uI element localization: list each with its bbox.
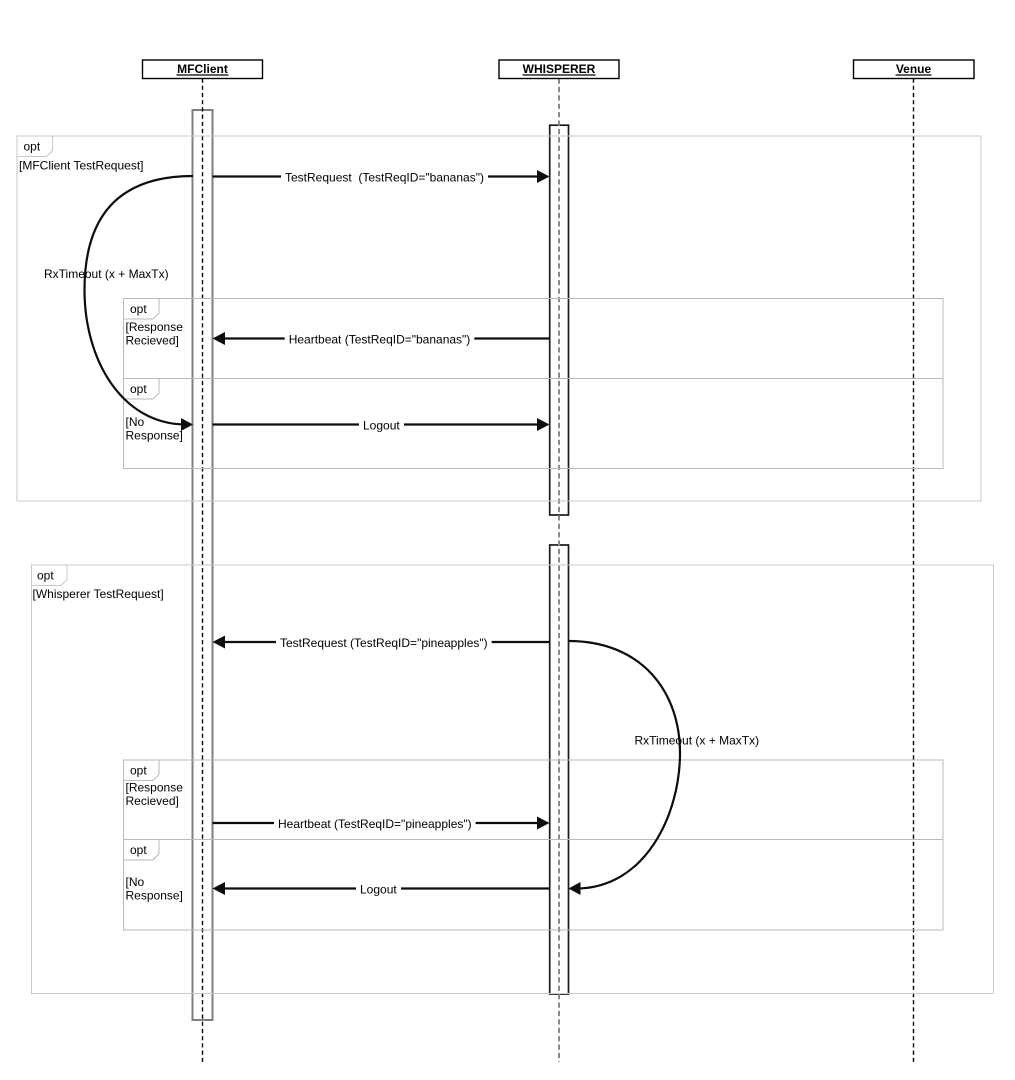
svg-text:[MFClient TestRequest]: [MFClient TestRequest] (19, 159, 144, 173)
svg-text:[Response: [Response (126, 320, 184, 334)
svg-text:TestRequest (TestReqID="pineap: TestRequest (TestReqID="pineapples") (280, 636, 488, 650)
svg-text:opt: opt (37, 568, 54, 582)
svg-text:opt: opt (130, 763, 147, 777)
svg-text:WHISPERER: WHISPERER (523, 62, 596, 76)
svg-text:opt: opt (130, 302, 147, 316)
svg-text:Logout: Logout (360, 883, 397, 897)
svg-text:Heartbeat (TestReqID="pineappl: Heartbeat (TestReqID="pineapples") (278, 817, 472, 831)
svg-text:Recieved]: Recieved] (126, 794, 179, 808)
svg-text:[Response: [Response (126, 781, 184, 795)
svg-text:opt: opt (24, 139, 41, 153)
svg-text:opt: opt (130, 382, 147, 396)
svg-text:Response]: Response] (126, 889, 183, 903)
svg-text:Recieved]: Recieved] (126, 334, 179, 348)
svg-text:RxTimeout (x + MaxTx): RxTimeout (x + MaxTx) (44, 267, 169, 281)
svg-text:Heartbeat (TestReqID="bananas": Heartbeat (TestReqID="bananas") (289, 333, 471, 347)
svg-text:MFClient: MFClient (177, 62, 228, 76)
svg-text:[No: [No (126, 875, 145, 889)
svg-text:TestRequest (TestReqID="banan: TestRequest (TestReqID="bananas") (285, 171, 484, 185)
svg-text:[Whisperer TestRequest]: [Whisperer TestRequest] (33, 587, 164, 601)
svg-text:Response]: Response] (126, 429, 183, 443)
svg-text:Venue: Venue (896, 62, 932, 76)
svg-text:RxTimeout (x + MaxTx): RxTimeout (x + MaxTx) (635, 734, 760, 748)
svg-text:[No: [No (126, 415, 145, 429)
svg-text:opt: opt (130, 843, 147, 857)
svg-text:Logout: Logout (363, 419, 400, 433)
